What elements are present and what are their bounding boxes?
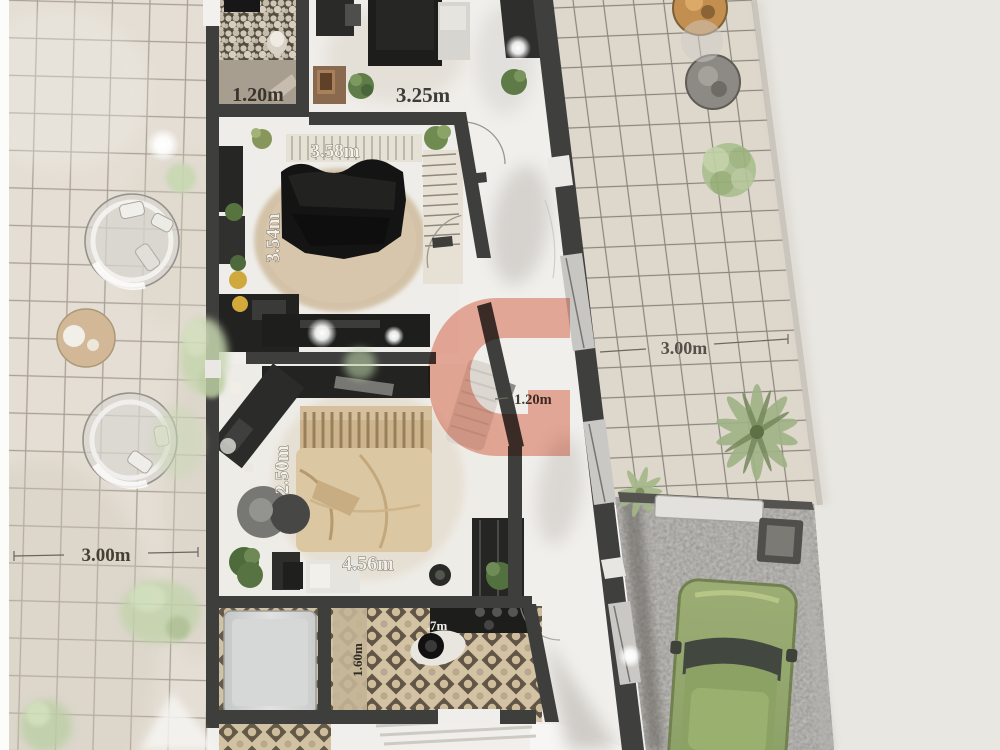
svg-text:3.00m: 3.00m [81,545,130,566]
svg-text:3.00m: 3.00m [661,338,708,358]
svg-text:3.58m: 3.58m [310,141,359,162]
svg-text:3.25m: 3.25m [396,83,451,107]
svg-text:1.20m: 1.20m [232,84,284,106]
svg-text:3.54m: 3.54m [263,213,284,262]
svg-text:4.56m: 4.56m [342,553,394,575]
svg-text:.7m: .7m [427,618,448,633]
svg-text:1.60m: 1.60m [350,643,365,677]
svg-text:2.50m: 2.50m [272,445,293,494]
